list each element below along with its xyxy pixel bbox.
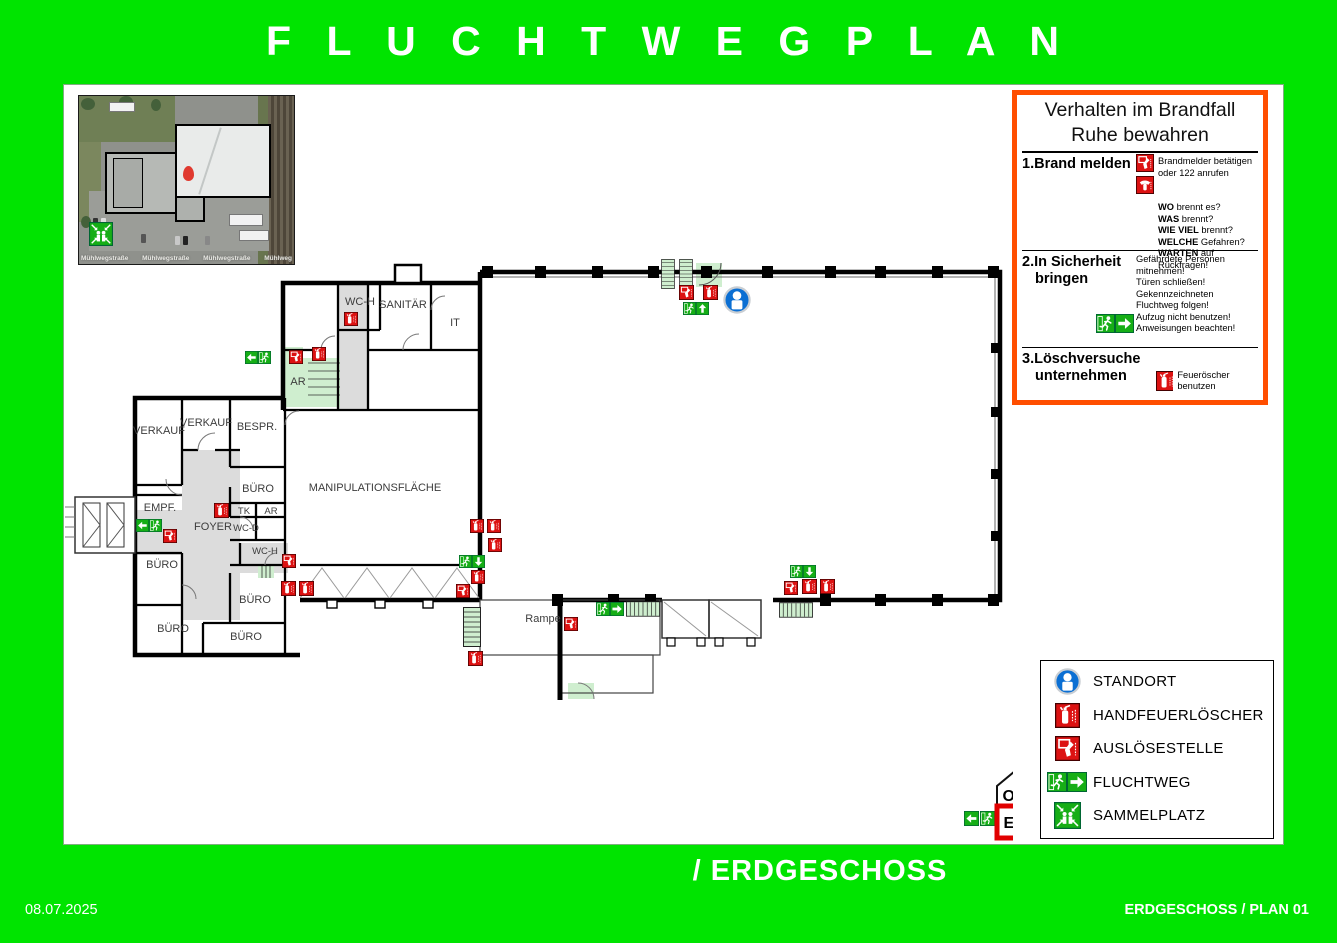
car	[183, 236, 188, 245]
room-label-ar-top: AR	[290, 376, 305, 388]
legend-row-standort: STANDORT	[1041, 665, 1273, 699]
plan-reference: ERDGESCHOSS / PLAN 01	[1124, 902, 1309, 918]
extinguisher-icon	[468, 651, 482, 665]
stairs	[626, 602, 659, 616]
room-label-verkauf-2: VERKAUF	[180, 417, 232, 429]
step3-label: 3.Löschversuche unternehmen	[1022, 349, 1156, 399]
escape-arrow-right-icon	[610, 602, 623, 615]
room-label-sanitaer: SANITÄR	[379, 299, 427, 311]
truck	[109, 102, 135, 112]
fire-instructions-panel: Verhalten im Brandfall Ruhe bewahren 1.B…	[1012, 90, 1268, 405]
alarm-icon	[289, 350, 302, 363]
car	[205, 236, 210, 245]
step2-line: mitnehmen!	[1136, 266, 1258, 278]
aerial-building-hall	[175, 124, 271, 198]
extinguisher-icon	[312, 347, 325, 360]
aerial-building-annex-detail	[113, 158, 143, 208]
question-line: WAS brennt?	[1158, 214, 1258, 226]
question-line: WELCHE Gefahren?	[1158, 237, 1258, 249]
tree	[151, 99, 161, 111]
extinguisher-icon	[214, 503, 228, 517]
stairs	[464, 608, 481, 647]
extinguisher-icon	[802, 579, 816, 593]
escape-route-icon	[1047, 772, 1087, 792]
room-label-tk: TK	[238, 506, 251, 517]
fluchtwegplan-page: { "page": { "title": "F L U C H T W E G …	[0, 0, 1337, 943]
room-label-manipulationsflaeche: MANIPULATIONSFLÄCHE	[309, 482, 441, 494]
icon-cluster-hall-top	[679, 285, 749, 314]
extinguisher-icon	[487, 519, 500, 532]
room-label-wc-d: WC-D	[233, 523, 259, 534]
step1-icon-text: Brandmelder betätigen	[1158, 156, 1252, 168]
entrance-vestibule	[65, 497, 135, 553]
question-line: WIE VIEL brennt?	[1158, 225, 1258, 237]
escape-route-icon	[258, 351, 270, 363]
alarm-icon	[564, 617, 577, 630]
floor-label-eg: EG	[1003, 815, 1013, 832]
legend-row-fluchtweg: FLUCHTWEG	[1041, 766, 1273, 800]
extinguisher-icon	[488, 538, 501, 551]
facade-line	[484, 277, 995, 595]
escape-route-icon	[683, 302, 695, 314]
legend-label: SAMMELPLATZ	[1093, 807, 1205, 824]
instructions-title: Verhalten im Brandfall	[1022, 98, 1258, 123]
extinguisher-icon	[344, 312, 357, 325]
escape-route-icon	[596, 602, 609, 615]
stair-fills	[258, 263, 722, 699]
alarm-icon	[163, 529, 176, 542]
legend-label: FLUCHTWEG	[1093, 774, 1191, 791]
step2-line: Türen schließen!	[1136, 277, 1258, 289]
room-label-verkauf-1: VERKAUF	[133, 425, 185, 437]
room-label-buero-3: BÜRO	[239, 594, 271, 606]
alarm-icon	[1136, 154, 1154, 172]
aerial-overview-map: Mühlwegstraße Mühlwegstraße Mühlwegstraß…	[78, 95, 295, 265]
alarm-icon	[282, 554, 295, 567]
escape-arrow-down-icon	[803, 565, 815, 577]
escape-route-icon	[980, 811, 994, 825]
room-label-wc-h-top: WC-H	[345, 296, 375, 308]
escape-arrow-left-icon	[245, 351, 257, 363]
icon-cluster-hall-bottom	[779, 565, 834, 617]
aerial-railway	[268, 96, 294, 265]
loading-docks	[662, 600, 761, 646]
room-label-buero-4: BÜRO	[157, 623, 189, 635]
room-label-buero-2: BÜRO	[146, 559, 178, 571]
truck	[229, 214, 263, 226]
room-label-buero-5: BÜRO	[230, 631, 262, 643]
escape-route-icon	[149, 519, 161, 531]
floor-title: / ERDGESCHOSS	[620, 855, 1020, 888]
room-label-empf: EMPF.	[144, 502, 176, 514]
step2-line: Gekennzeichneten	[1136, 289, 1258, 301]
legend-panel: STANDORT HANDFEUERLÖSCHER AUSLÖSESTELLE …	[1040, 660, 1274, 839]
instruction-step-2: 2.In Sicherheit bringen Gefährdete Perso…	[1022, 250, 1258, 347]
extinguisher-icon	[471, 570, 484, 583]
extinguisher-icon	[281, 581, 295, 595]
step2-line: Fluchtweg folgen!	[1136, 300, 1258, 312]
standort-icon	[724, 287, 749, 312]
floor-indicator: OG EG	[964, 771, 1013, 838]
step1-number: 1.	[1022, 156, 1034, 172]
room-label-it: IT	[450, 317, 460, 329]
legend-row-sammelplatz: SAMMELPLATZ	[1041, 799, 1273, 833]
room-label-foyer: FOYER	[194, 521, 232, 533]
step3-icon-text: Feueröscher benutzen	[1177, 370, 1258, 393]
step2-line: Aufzug nicht benutzen!	[1136, 312, 1235, 324]
room-label-wc-h-mid: WC-H	[252, 546, 278, 557]
extinguisher-icon	[1055, 703, 1080, 728]
question-line: WO brennt es?	[1158, 202, 1258, 214]
step2-line: Gefährdete Personen	[1136, 254, 1258, 266]
car	[141, 234, 146, 243]
escape-arrow-down-icon	[472, 555, 484, 567]
room-label-buero-1: BÜRO	[242, 483, 274, 495]
page-title: F L U C H T W E G P L A N	[0, 18, 1337, 65]
alarm-icon	[456, 584, 469, 597]
legend-row-ausloesestelle: AUSLÖSESTELLE	[1041, 732, 1273, 766]
step3-number: 3.	[1022, 351, 1034, 367]
legend-label: HANDFEUERLÖSCHER	[1093, 707, 1264, 724]
plan-date: 08.07.2025	[25, 902, 98, 918]
standort-icon	[1054, 668, 1081, 695]
instruction-step-1: 1.Brand melden Brandmelder betätigen ode…	[1022, 153, 1258, 250]
extinguisher-icon	[820, 579, 834, 593]
escape-arrow-left-icon	[964, 811, 978, 825]
step2-line: Anweisungen beachten!	[1136, 323, 1235, 335]
truck	[239, 230, 269, 241]
step1-label: 1.Brand melden	[1022, 154, 1136, 250]
escape-route-icon	[1096, 314, 1134, 333]
step2-number: 2.	[1022, 254, 1034, 270]
assembly-point-icon	[89, 222, 113, 246]
canopy	[395, 265, 421, 283]
room-label-ar-mid: AR	[264, 506, 277, 517]
legend-label: AUSLÖSESTELLE	[1093, 740, 1224, 757]
extinguisher-icon	[299, 581, 313, 595]
icon-cluster-rampe	[564, 602, 659, 631]
extinguisher-icon	[1156, 371, 1173, 391]
instructions-subtitle: Ruhe bewahren	[1022, 123, 1258, 148]
legend-row-handfeuerloescher: HANDFEUERLÖSCHER	[1041, 699, 1273, 733]
escape-arrow-up-icon	[696, 302, 708, 314]
phone-icon	[1136, 176, 1154, 194]
car	[175, 236, 180, 245]
step1-icon-text: oder 122 anrufen	[1158, 168, 1252, 180]
alarm-icon	[1055, 736, 1080, 761]
extinguisher-icon	[703, 285, 717, 299]
floor-plan: WC-H SANITÄR IT AR VERKAUF VERKAUF BESPR…	[63, 255, 1013, 855]
aerial-dock	[175, 196, 205, 222]
legend-label: STANDORT	[1093, 673, 1177, 690]
tree	[81, 98, 95, 110]
stairs	[779, 603, 812, 617]
escape-arrow-left-icon	[136, 519, 148, 531]
alarm-icon	[784, 581, 797, 594]
room-label-bespr: BESPR.	[237, 421, 277, 433]
assembly-point-icon	[1054, 802, 1081, 829]
floor-label-og: OG	[1003, 788, 1013, 805]
instruction-step-3: 3.Löschversuche unternehmen Feueröscher …	[1022, 347, 1258, 399]
escape-route-icon	[790, 565, 802, 577]
extinguisher-icon	[470, 519, 483, 532]
aerial-location-marker	[183, 166, 194, 181]
alarm-icon	[679, 285, 693, 299]
room-label-rampe: Rampe	[525, 613, 560, 625]
escape-route-icon	[459, 555, 471, 567]
